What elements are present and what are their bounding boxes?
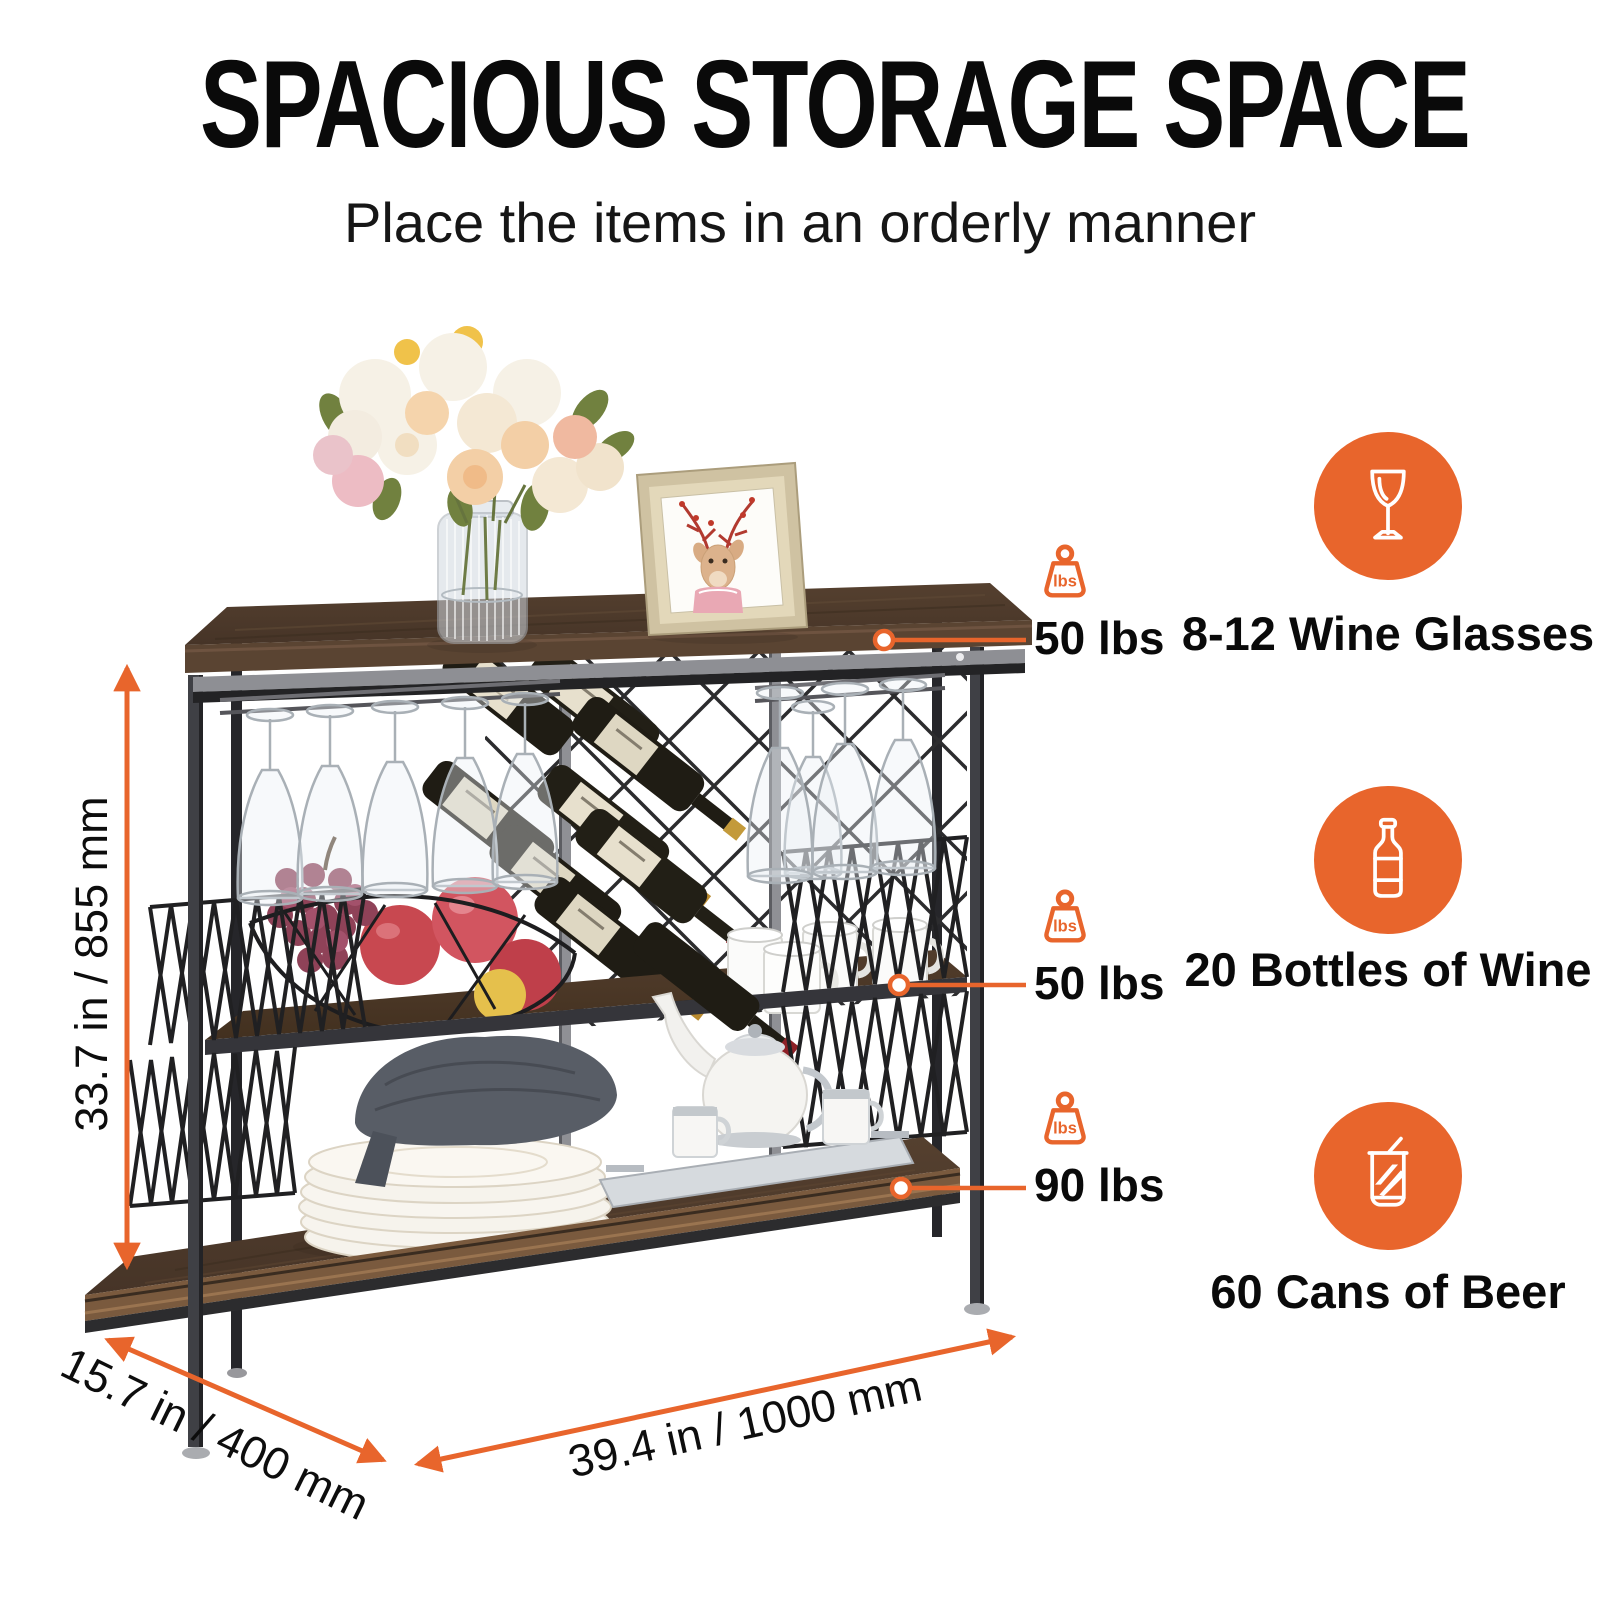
flower-bouquet (312, 326, 640, 533)
wine-bottles-feature-badge (1314, 786, 1462, 934)
weight-lbs-icon: lbs (1034, 1090, 1096, 1152)
wine-glass-icon (1342, 460, 1434, 552)
weight-lbs-icon: lbs (1034, 888, 1096, 950)
svg-text:lbs: lbs (1053, 1120, 1077, 1138)
page-title: SPACIOUS STORAGE SPACE (200, 40, 1400, 170)
beer-can-icon (1342, 1130, 1434, 1222)
beer-cans-feature-label: 60 Cans of Beer (1168, 1264, 1600, 1319)
svg-text:lbs: lbs (1053, 918, 1077, 936)
flower-vase (427, 501, 537, 653)
picture-frame (637, 463, 807, 644)
product-infographic: SPACIOUS STORAGE SPACE Place the items i… (0, 0, 1600, 1600)
wine-bottle-icon (1342, 814, 1434, 906)
page-subtitle: Place the items in an orderly manner (0, 190, 1600, 255)
bottom-shelf-capacity-callout: lbs 90 lbs (1034, 1090, 1254, 1212)
weight-lbs-icon: lbs (1034, 543, 1096, 605)
wine-bottles-feature-label: 20 Bottles of Wine (1168, 942, 1600, 997)
product-photo (55, 295, 1045, 1505)
beer-cans-feature-badge (1314, 1102, 1462, 1250)
table-legs (182, 647, 990, 1459)
height-dimension-label: 33.7 in / 855 mm (66, 634, 118, 1294)
wine-glasses-feature-label: 8-12 Wine Glasses (1168, 606, 1600, 661)
wine-glasses-feature-badge (1314, 432, 1462, 580)
svg-text:lbs: lbs (1053, 573, 1077, 591)
bottom-shelf-capacity-label: 90 lbs (1034, 1158, 1254, 1212)
